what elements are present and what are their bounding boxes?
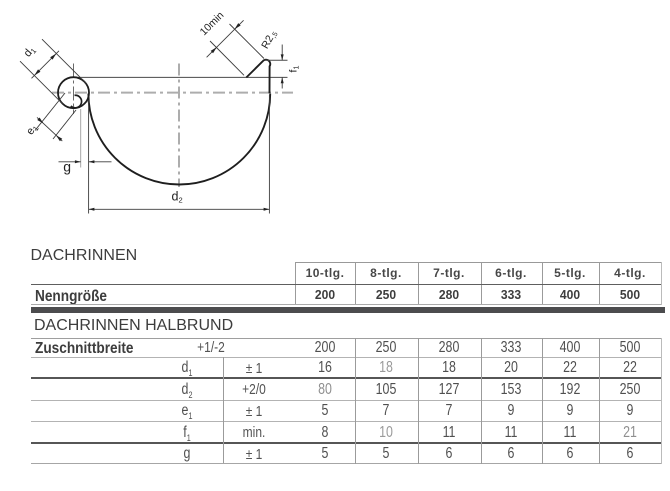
svg-text:10min: 10min <box>198 9 227 38</box>
svg-text:R2,5: R2,5 <box>259 28 280 51</box>
svg-text:e1: e1 <box>24 122 41 138</box>
svg-text:g: g <box>63 159 71 175</box>
svg-text:d2: d2 <box>172 190 183 205</box>
svg-text:d1: d1 <box>22 44 39 60</box>
svg-text:f1: f1 <box>288 65 301 72</box>
